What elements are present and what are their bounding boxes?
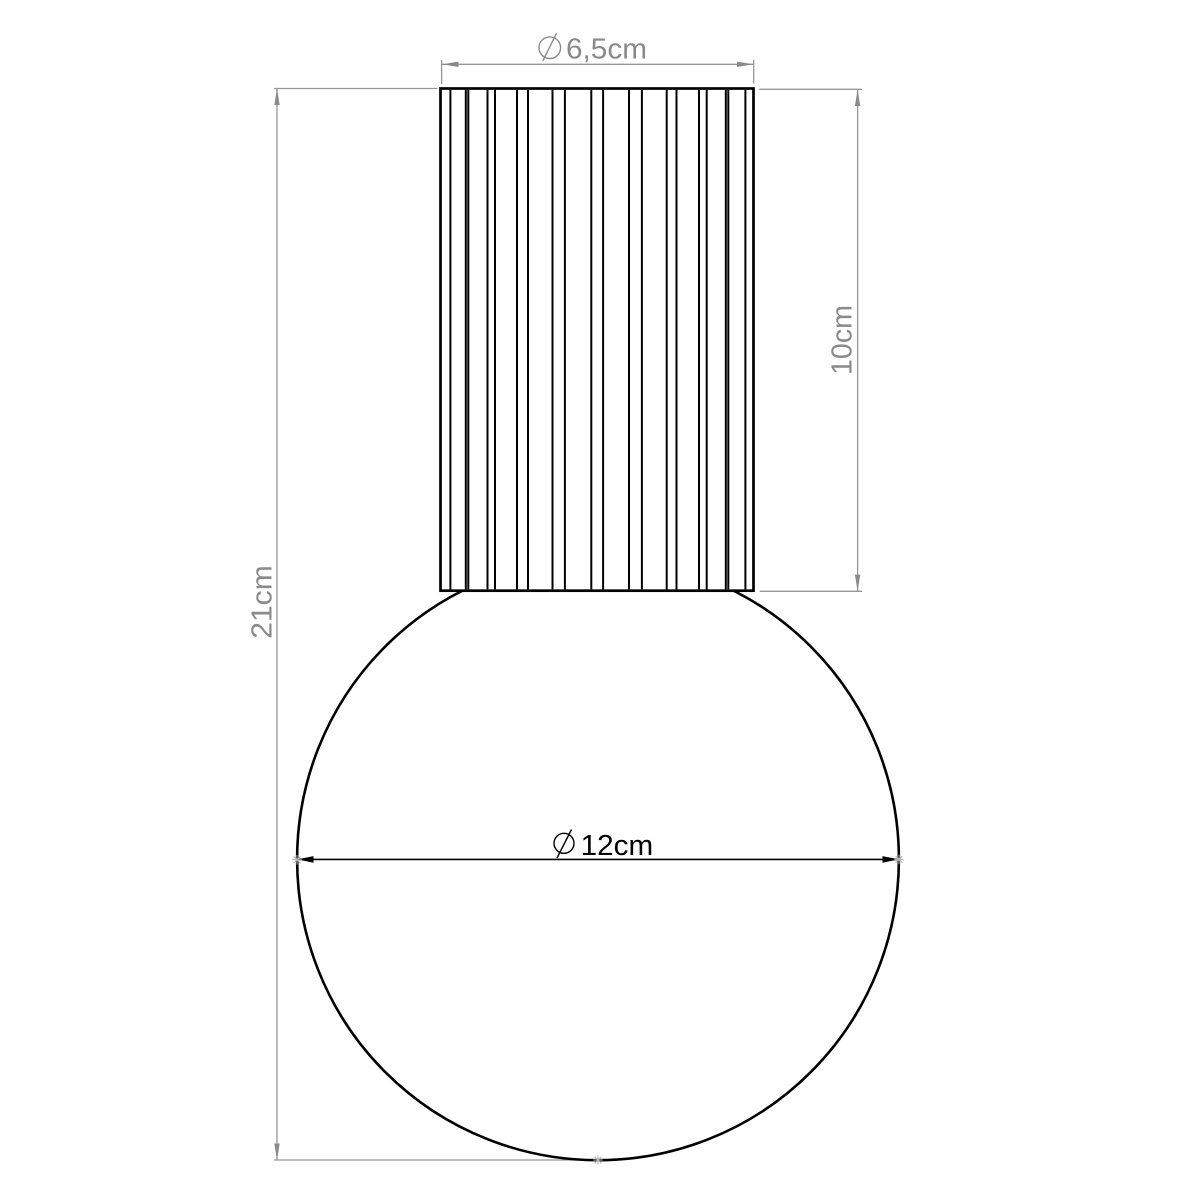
- svg-text:6,5cm: 6,5cm: [566, 33, 647, 65]
- svg-text:21cm: 21cm: [247, 565, 279, 639]
- svg-text:12cm: 12cm: [581, 830, 654, 862]
- svg-text:10cm: 10cm: [826, 305, 858, 375]
